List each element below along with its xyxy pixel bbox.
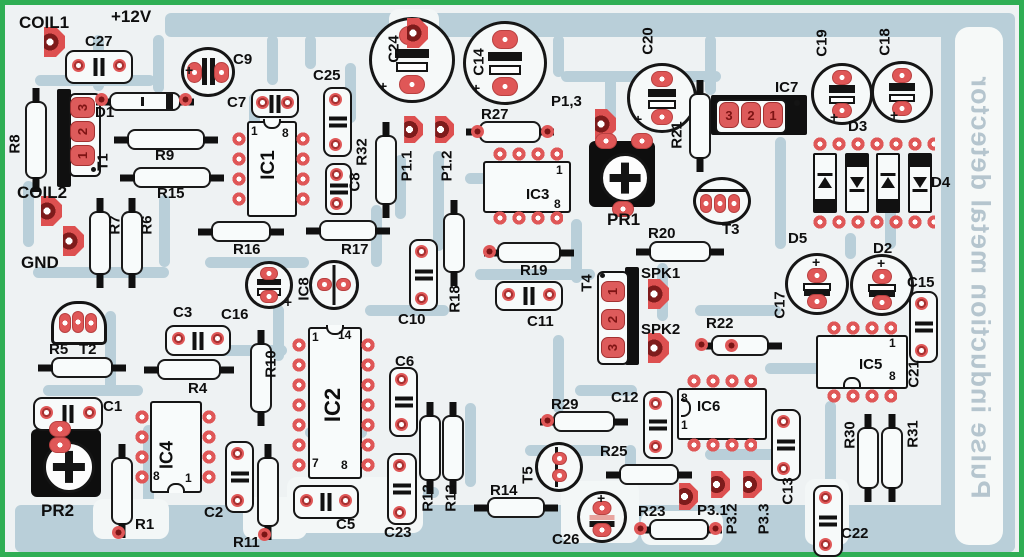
diode-1 [813, 153, 837, 213]
diode-3 [876, 153, 900, 213]
ic7-pin-3-label: 3 [725, 108, 732, 123]
label-r30: R30 [842, 421, 859, 449]
label-r1: R1 [135, 516, 154, 533]
ic5-pin1: 1 [889, 336, 896, 350]
t4-pin-1: 1 [601, 281, 625, 302]
cap-c5 [293, 485, 359, 519]
pcb-trace [705, 35, 716, 95]
label-c22: C22 [841, 525, 869, 542]
label-r5: R5 [49, 341, 68, 358]
resistor-r5 [51, 357, 113, 378]
label-c5: C5 [336, 516, 355, 533]
board-title: Pulse induction metal detector [965, 75, 996, 498]
ic7-pin-1-label: 1 [769, 108, 776, 123]
pad-p11 [396, 116, 423, 143]
cap-c27 [65, 50, 133, 84]
c14-plus: + [472, 80, 480, 96]
ic1-pads-left [231, 129, 247, 209]
label-c24: C24 [386, 35, 403, 63]
transistor-t5 [535, 442, 583, 492]
resistor-r25 [619, 464, 679, 485]
t4-pin1-dot [600, 273, 605, 278]
resistor-r22 [711, 335, 769, 356]
resistor-r16 [211, 221, 271, 242]
cap-c7 [251, 89, 299, 118]
label-p11: P1.1 [399, 151, 416, 182]
label-c23: C23 [384, 524, 412, 541]
label-ic1: IC1 [258, 150, 280, 180]
pad-p33 [735, 471, 762, 498]
solder-dot [471, 125, 484, 138]
label-coil1: COIL1 [19, 13, 69, 33]
pcb-trace [159, 195, 170, 267]
label-r25: R25 [600, 443, 628, 460]
label-t2: T2 [79, 341, 97, 358]
label-d4: D4 [931, 174, 950, 191]
label-ic2: IC2 [320, 388, 346, 422]
pcb-trace [305, 35, 316, 69]
ic2-pin7: 7 [312, 456, 319, 470]
label-t1: T1 [95, 153, 112, 171]
c26-plus: + [597, 490, 605, 506]
c9-plus: + [185, 62, 193, 78]
label-r23: R23 [638, 503, 666, 520]
resistor-r4 [157, 359, 221, 380]
label-ic7: IC7 [775, 79, 798, 96]
ecap-c26: + [577, 491, 627, 543]
ecap-c19: + [811, 63, 873, 125]
ic7-pin-2-label: 2 [747, 108, 754, 123]
resistor-r27 [479, 121, 541, 143]
label-plus12v: +12V [111, 7, 151, 27]
c16-plus: + [284, 294, 292, 310]
pcb-trace [825, 401, 836, 487]
label-r19: R19 [520, 262, 548, 279]
diode-d1 [109, 92, 181, 111]
label-r20: R20 [648, 225, 676, 242]
ic4-pin8: 8 [153, 469, 160, 483]
label-r12: R12 [420, 484, 437, 512]
label-pr1: PR1 [607, 210, 640, 230]
cap-c10 [409, 239, 438, 311]
label-r31: R31 [905, 420, 922, 448]
label-r4: R4 [188, 380, 207, 397]
label-ic6: IC6 [697, 398, 720, 415]
ecap-c9: + [181, 47, 235, 97]
ic3-pads-top [491, 145, 563, 163]
pad-gnd [54, 226, 84, 256]
label-r21: R21 [669, 121, 686, 149]
solder-dot [709, 522, 722, 535]
ic1-pin1: 1 [251, 124, 258, 138]
ic6-pin8: 8 [681, 391, 688, 405]
label-coil2: COIL2 [17, 183, 67, 203]
label-p32: P3.2 [724, 504, 741, 535]
label-r14: R14 [490, 482, 518, 499]
ic6-pads-top [685, 372, 757, 390]
solder-dot [483, 245, 496, 258]
diode-4 [908, 153, 932, 213]
ic7-pin1-dot [794, 100, 800, 106]
pcb-trace [153, 35, 164, 93]
t4-pin-1-label: 1 [605, 288, 620, 295]
label-c6: C6 [395, 353, 414, 370]
ic1-pads-right [295, 129, 311, 209]
resistor-r32 [375, 135, 397, 205]
pr1-pad [631, 133, 653, 149]
label-c15: C15 [907, 274, 935, 291]
pcb-trace [267, 35, 278, 85]
resistor-r1 [111, 457, 133, 525]
ecap-c20: + [627, 63, 697, 133]
label-t5: T5 [520, 466, 537, 484]
ecap-c16: + [245, 261, 293, 309]
pcb-trace [553, 35, 564, 77]
ic1-pin8: 8 [282, 126, 289, 140]
c20-plus: + [634, 111, 642, 127]
resistor-r30 [857, 427, 879, 489]
ic5-notch [843, 377, 861, 387]
t1-pin-3: 3 [70, 97, 95, 118]
transistor-t3 [693, 177, 751, 225]
pcb-trace [465, 403, 476, 487]
diode-bank-pads-bottom [811, 213, 935, 231]
pr1-screw [600, 153, 650, 203]
solder-dot [179, 93, 192, 106]
label-r6: R6 [139, 215, 156, 234]
label-r32: R32 [354, 138, 371, 166]
ic4-pin1: 1 [185, 471, 192, 485]
c19-plus: + [830, 109, 838, 125]
resistor-r11 [257, 457, 279, 527]
label-ic8: IC8 [296, 277, 313, 300]
resistor-r8 [25, 101, 47, 179]
pcb-trace [775, 137, 786, 249]
solder-dot [634, 522, 647, 535]
label-c3: C3 [173, 304, 192, 321]
pcb-trace [845, 233, 856, 259]
label-t3: T3 [722, 221, 740, 238]
cap-c12 [643, 391, 673, 459]
label-r10: R10 [263, 350, 280, 378]
label-p13: P1,3 [551, 93, 582, 110]
c17-plus: + [812, 254, 820, 270]
solder-dot [112, 526, 125, 539]
pr1-pad [595, 133, 617, 149]
ic2-pin1: 1 [312, 330, 319, 344]
t4-pin-2: 2 [601, 309, 625, 330]
label-c19: C19 [814, 29, 831, 57]
label-spk2: SPK2 [641, 321, 680, 338]
label-c13: C13 [780, 477, 797, 505]
solder-dot [541, 414, 554, 427]
pcb-pour-top [165, 13, 957, 37]
ic4-notch [167, 483, 185, 493]
label-ic4: IC4 [157, 441, 178, 469]
solder-dot [541, 125, 554, 138]
cap-c2 [225, 441, 254, 513]
ic2-pin8: 8 [341, 458, 348, 472]
label-ic3: IC3 [526, 186, 549, 203]
label-gnd: GND [21, 253, 59, 273]
solder-dot [258, 528, 271, 541]
diode-bank-pads-top [811, 135, 935, 153]
label-r15: R15 [157, 185, 185, 202]
ic2-pads-right [360, 335, 376, 475]
label-c8: C8 [347, 172, 364, 191]
ic5-pin8: 8 [889, 369, 896, 383]
ic6-pads-bottom [685, 436, 757, 454]
label-r9: R9 [155, 147, 174, 164]
label-c14: C14 [471, 48, 488, 76]
transistor-t2 [51, 301, 107, 345]
ic3-pads-bottom [491, 209, 563, 227]
cap-c6 [389, 367, 418, 437]
ic6-body [677, 388, 767, 440]
ic4-pads-right [201, 407, 217, 487]
ic7-pin-1: 1 [763, 102, 783, 128]
label-c25: C25 [313, 67, 341, 84]
t1-pin-1: 1 [70, 145, 95, 166]
label-c20: C20 [640, 27, 657, 55]
solder-dot [695, 338, 708, 351]
resistor-r18 [443, 213, 465, 273]
ecap-c18: + [871, 61, 933, 123]
label-ic5: IC5 [859, 356, 882, 373]
ic2-pin14: 14 [338, 328, 351, 342]
label-spk1: SPK1 [641, 265, 680, 282]
label-c9: C9 [233, 51, 252, 68]
ic6-pin1: 1 [681, 418, 688, 432]
pr2-pad [49, 421, 71, 437]
resistor-r23 [649, 519, 709, 540]
ic2-pads-left [291, 335, 307, 475]
t4-pin-3: 3 [601, 337, 625, 358]
ic3-pin8: 8 [554, 197, 561, 211]
pcb-board: 3 2 1 + 1 8 + [0, 0, 1024, 557]
label-r27: R27 [481, 106, 509, 123]
label-r11: R11 [233, 534, 260, 551]
cap-c23 [387, 453, 417, 525]
label-c18: C18 [877, 28, 894, 56]
c24-plus: + [379, 78, 387, 94]
pad-spk1 [639, 279, 669, 309]
ic4-pads-left [134, 407, 150, 487]
label-c27: C27 [85, 33, 113, 50]
cap-c3 [165, 325, 231, 356]
label-c7: C7 [227, 94, 246, 111]
resistor-r17 [319, 220, 377, 241]
label-c12: C12 [611, 389, 639, 406]
label-c2: C2 [204, 504, 223, 521]
ecap-ic8 [309, 260, 359, 310]
label-r7: R7 [107, 215, 124, 234]
label-r18: R18 [447, 285, 464, 313]
label-r16: R16 [233, 241, 261, 258]
label-c21: C21 [906, 360, 923, 388]
t4-pin-3-label: 3 [605, 344, 620, 351]
label-d2: D2 [873, 240, 892, 257]
cap-c25 [323, 87, 352, 157]
label-t4: T4 [579, 274, 596, 292]
label-r13: R13 [443, 484, 460, 512]
resistor-r12 [419, 415, 441, 481]
label-d3: D3 [848, 118, 867, 135]
ic5-pads-bottom [825, 387, 897, 405]
label-c26: C26 [552, 531, 580, 548]
cap-c13 [771, 409, 801, 481]
label-c1: C1 [103, 398, 122, 415]
cap-c11 [495, 281, 563, 311]
pr2-pad [49, 437, 71, 453]
t1-pin-1-label: 1 [75, 152, 90, 159]
ecap-d2: + [850, 254, 914, 316]
resistor-r13 [442, 415, 464, 481]
label-r22: R22 [706, 315, 734, 332]
diode-2 [845, 153, 869, 213]
resistor-r14 [487, 497, 545, 518]
label-d5: D5 [788, 230, 807, 247]
pcb-layout-image: 3 2 1 + 1 8 + [0, 0, 1024, 557]
resistor-r31 [881, 427, 903, 489]
c18-plus: + [890, 107, 898, 123]
resistor-r19 [497, 242, 561, 263]
label-r8: R8 [7, 134, 24, 153]
resistor-r29 [553, 411, 615, 432]
d2-plus: + [877, 255, 885, 271]
ic7-pin-2: 2 [741, 102, 761, 128]
label-d1: D1 [95, 104, 114, 121]
label-p12: P1.2 [439, 151, 456, 182]
ic7-pin-3: 3 [719, 102, 739, 128]
t4-pin-2-label: 2 [605, 316, 620, 323]
ic3-pin1: 1 [556, 163, 563, 177]
t1-pin-3-label: 3 [75, 104, 90, 111]
label-c10: C10 [398, 311, 426, 328]
ic5-pads-top [825, 319, 897, 337]
label-r29: R29 [551, 396, 579, 413]
t1-pin-2-label: 2 [75, 128, 90, 135]
solder-dot [725, 339, 738, 352]
pad-p12 [427, 116, 454, 143]
resistor-r21 [689, 93, 711, 159]
label-c17: C17 [772, 291, 789, 319]
cap-c22 [813, 485, 843, 557]
label-r17: R17 [341, 241, 369, 258]
label-pr2: PR2 [41, 501, 74, 521]
pcb-trace [43, 385, 143, 396]
pad-p32 [703, 471, 730, 498]
ecap-c17: + [785, 253, 849, 315]
cap-c15 [909, 291, 938, 363]
label-p33: P3.3 [756, 504, 773, 535]
label-c16: C16 [221, 306, 249, 323]
resistor-r20 [649, 241, 711, 262]
label-c11: C11 [527, 313, 554, 330]
t1-pin-2: 2 [70, 121, 95, 142]
